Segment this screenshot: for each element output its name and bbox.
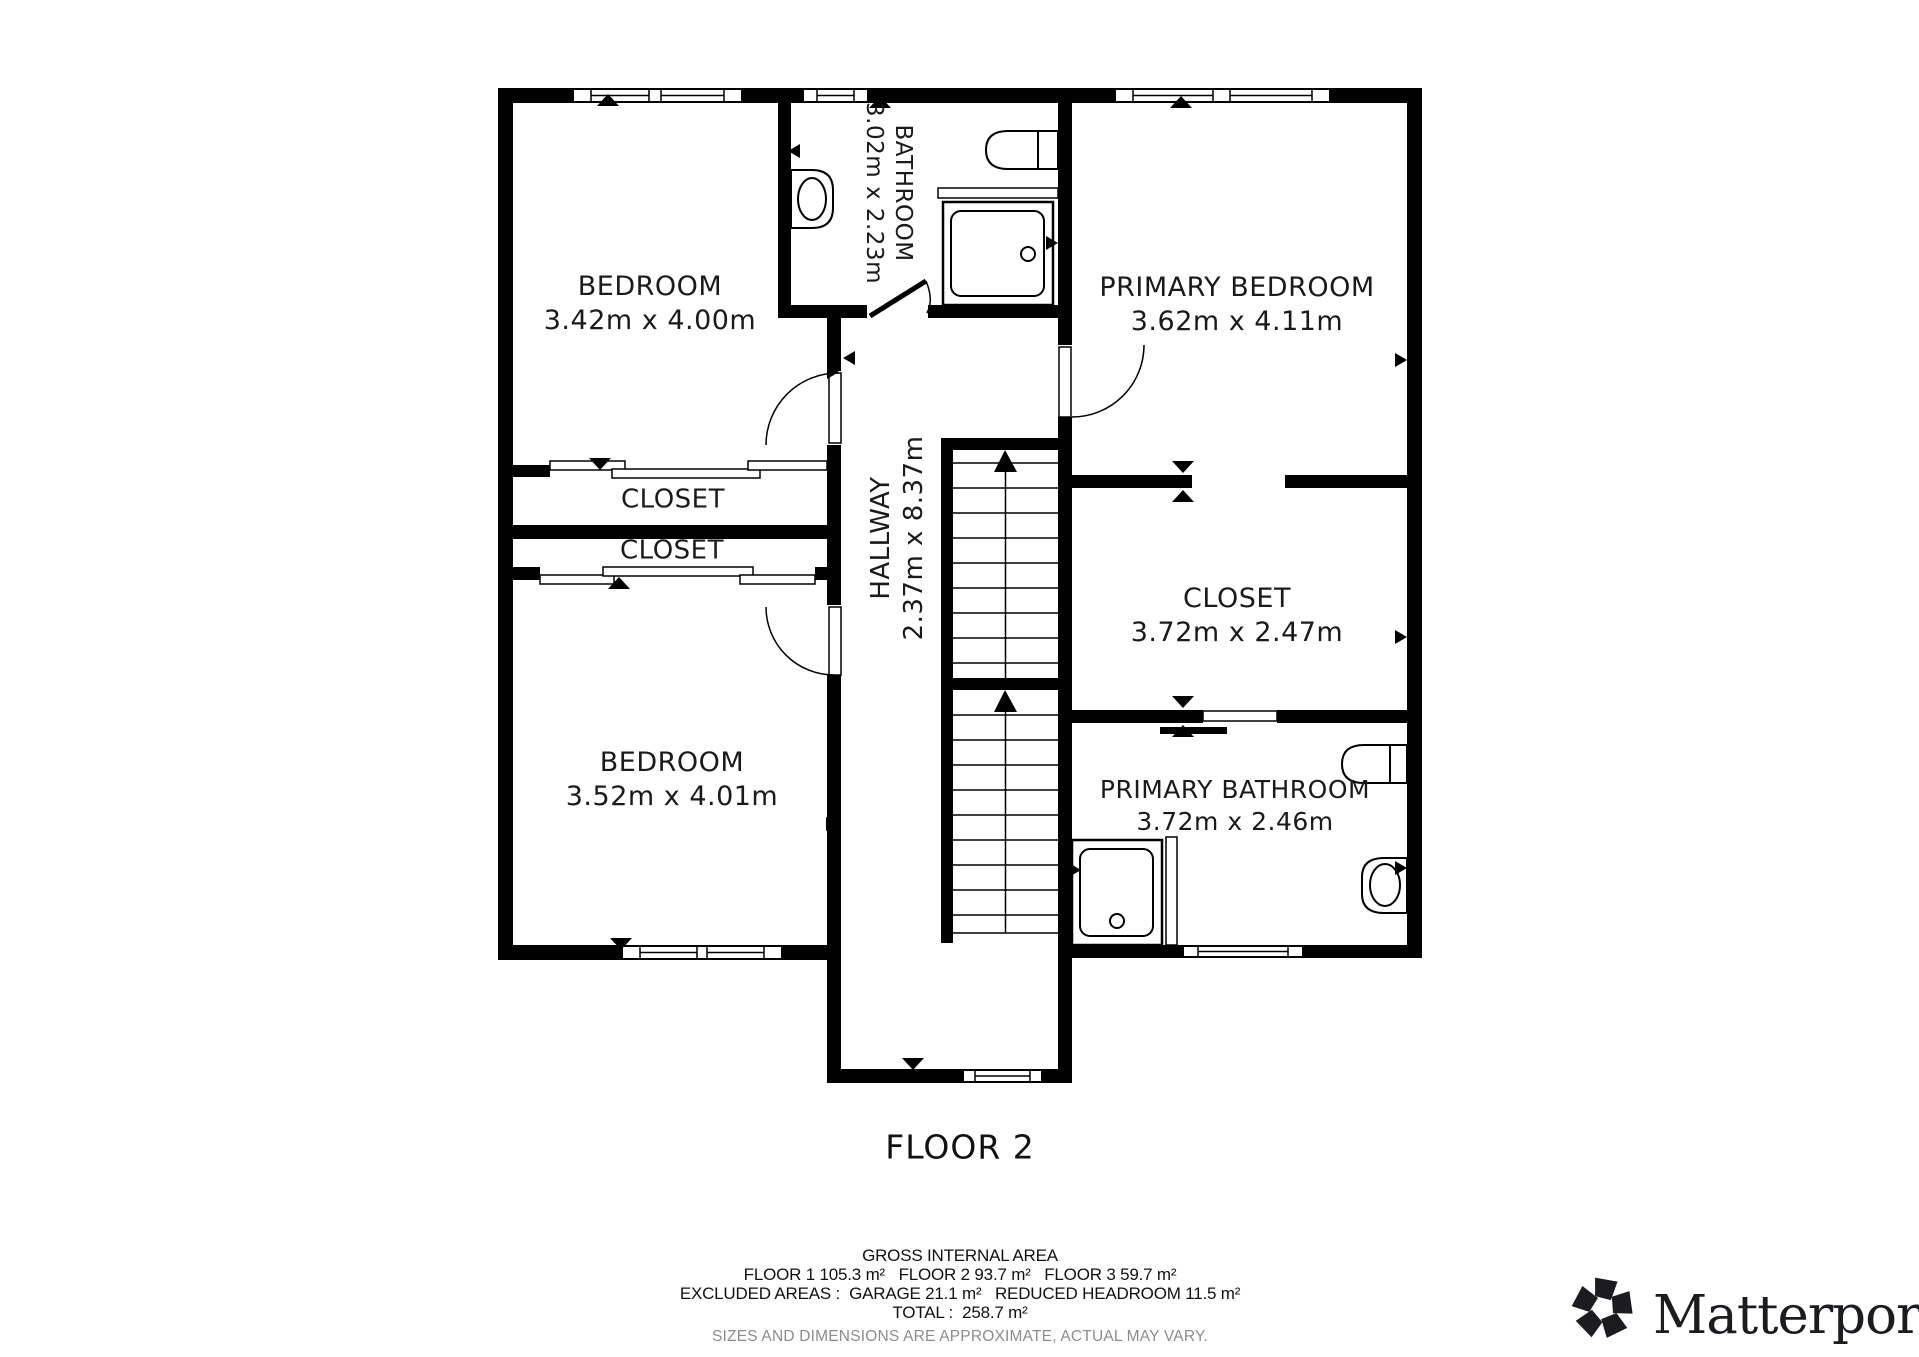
room-label-closet-upper: CLOSET [621,484,725,517]
room-name: BEDROOM [544,270,756,304]
matterport-logo: Matterport® [1570,1264,1919,1352]
room-name: PRIMARY BEDROOM [1099,271,1374,305]
door-primary-bedroom [1059,345,1144,417]
room-dimensions: 3.72m x 2.46m [1100,806,1370,838]
door-bathroom [870,281,930,316]
total-area-line: TOTAL : 258.7 m² [680,1303,1240,1322]
disclaimer-text: SIZES AND DIMENSIONS ARE APPROXIMATE, AC… [680,1327,1240,1346]
stair-up-arrow [994,450,1017,472]
matterport-pinwheel-icon [1570,1272,1636,1344]
room-dimensions: 3.52m x 4.01m [566,780,778,814]
room-label-bedroom-top: BEDROOM 3.42m x 4.00m [544,270,756,338]
staircase [953,450,1058,933]
room-name: HALLWAY [865,436,898,641]
room-name: CLOSET [621,484,725,517]
room-dimensions: 3.42m x 4.00m [544,304,756,338]
floor-plan-page: BEDROOM 3.42m x 4.00m BATHROOM 3.02m x 2… [0,0,1919,1357]
toilet [986,131,1058,169]
room-name: BATHROOM [888,102,917,284]
window-primary-bedroom [1115,89,1330,102]
room-name: BEDROOM [566,746,778,780]
room-dimensions: 3.62m x 4.11m [1099,305,1374,339]
room-label-bathroom: BATHROOM 3.02m x 2.23m [859,102,917,284]
room-dimensions: 3.72m x 2.47m [1131,616,1343,650]
room-label-closet-right: CLOSET 3.72m x 2.47m [1131,582,1343,650]
shower-partition [1166,837,1177,945]
room-label-hallway: HALLWAY 2.37m x 8.37m [865,436,931,641]
room-label-bedroom-bottom: BEDROOM 3.52m x 4.01m [566,746,778,814]
excluded-areas-line: EXCLUDED AREAS : GARAGE 21.1 m² REDUCED … [680,1284,1240,1303]
area-summary: GROSS INTERNAL AREA FLOOR 1 105.3 m² FLO… [680,1246,1240,1346]
room-dimensions: 3.02m x 2.23m [859,102,888,284]
gross-internal-area-heading: GROSS INTERNAL AREA [680,1246,1240,1265]
room-label-closet-lower: CLOSET [620,535,724,568]
shelf [938,188,1058,198]
door-bedroom-top [766,373,841,445]
shower [1072,837,1177,945]
stair-lower-flight [953,690,1058,933]
room-name: CLOSET [620,535,724,568]
primary-bathroom-slider [1203,711,1277,721]
room-dimensions: 2.37m x 8.37m [898,436,931,641]
room-label-primary-bathroom: PRIMARY BATHROOM 3.72m x 2.46m [1100,774,1370,838]
floor-title: FLOOR 2 [885,1128,1035,1167]
window-bedroom-top [573,89,742,102]
room-name: PRIMARY BATHROOM [1100,774,1370,806]
brand-name: Matterport [1653,1285,1919,1346]
shower [938,188,1058,305]
stair-upper-flight [953,450,1058,678]
stair-up-arrow [994,690,1017,712]
window-bathroom-top [803,89,868,102]
room-name: CLOSET [1131,582,1343,616]
window-hallway-bottom [963,1070,1042,1082]
room-label-primary-bedroom: PRIMARY BEDROOM 3.62m x 4.11m [1099,271,1374,339]
matterport-wordmark: Matterport® [1653,1264,1919,1352]
door-bedroom-bottom [766,607,841,675]
window-primary-bathroom [1183,946,1303,957]
floor-areas-line: FLOOR 1 105.3 m² FLOOR 2 93.7 m² FLOOR 3… [680,1265,1240,1284]
sink [791,170,833,228]
window-bedroom-bottom [622,946,782,959]
